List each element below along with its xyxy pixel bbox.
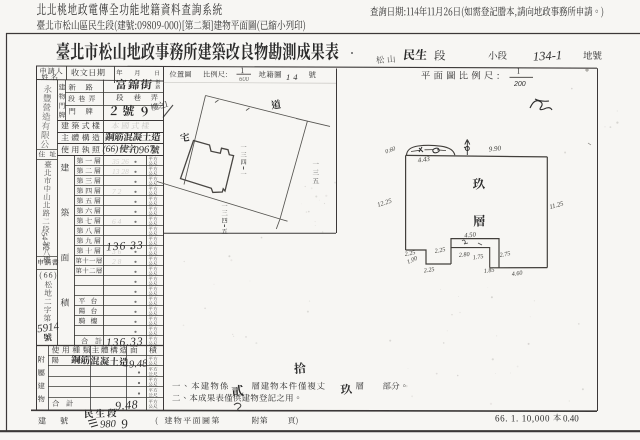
svg-text:600: 600 <box>239 77 250 83</box>
svg-text:9.48: 9.48 <box>115 397 139 413</box>
svg-text:0.40: 0.40 <box>563 414 579 424</box>
svg-text:13 28: 13 28 <box>112 167 129 176</box>
svg-text:136.33: 136.33 <box>106 336 144 349</box>
svg-text:134-1: 134-1 <box>533 48 563 64</box>
svg-text:1.75: 1.75 <box>472 253 484 261</box>
svg-text:14: 14 <box>286 72 301 82</box>
svg-text:2.25: 2.25 <box>423 266 435 274</box>
svg-text:35 26: 35 26 <box>111 157 129 166</box>
svg-text:66. 1. 10,000: 66. 1. 10,000 <box>495 414 550 424</box>
svg-text:6 4: 6 4 <box>112 217 122 226</box>
svg-text:1.85: 1.85 <box>483 267 495 275</box>
svg-text:4.50: 4.50 <box>464 231 477 239</box>
svg-text:2 8: 2 8 <box>112 257 122 266</box>
svg-text:(66): (66) <box>103 144 119 155</box>
svg-text:980: 980 <box>100 419 117 431</box>
svg-text:9.90: 9.90 <box>488 144 502 153</box>
svg-text:2.80: 2.80 <box>458 251 470 259</box>
svg-text:200: 200 <box>513 81 526 88</box>
svg-text:7 2: 7 2 <box>112 187 122 196</box>
svg-text:9.48: 9.48 <box>129 358 149 370</box>
svg-text:136 33: 136 33 <box>106 240 144 254</box>
